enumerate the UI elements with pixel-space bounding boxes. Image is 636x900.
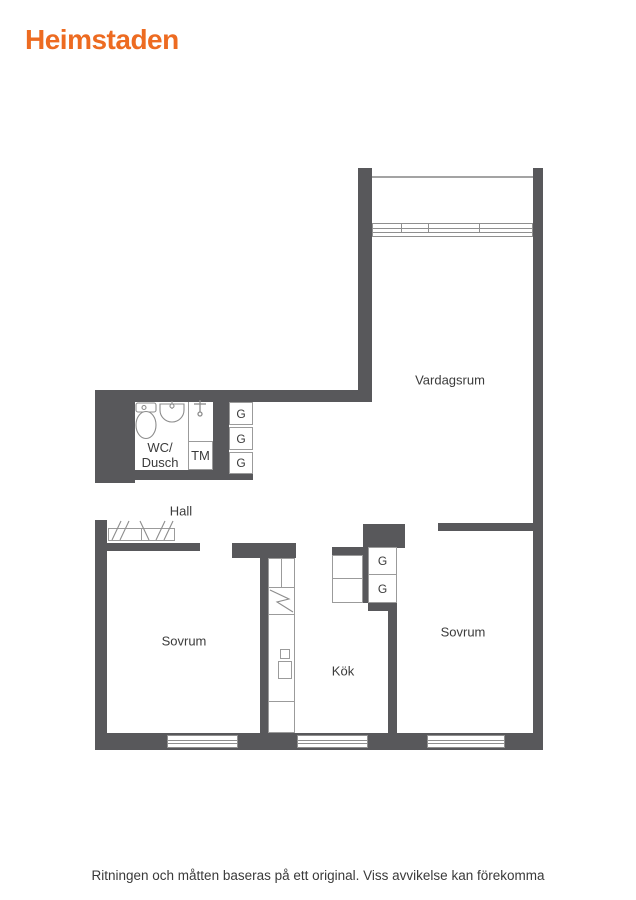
freezer-cabinet	[332, 578, 363, 603]
room-label-wc-line2: Dusch	[142, 455, 179, 470]
wall-hall-sovrum	[95, 543, 200, 551]
kitchen-counter	[268, 558, 295, 733]
wardrobe-cabinet: G	[368, 547, 397, 575]
wall-sovrum-right-top	[438, 523, 533, 531]
shower-stall-divider	[188, 402, 189, 442]
disclaimer-text: Ritningen och måtten baseras på ett orig…	[0, 868, 636, 883]
wardrobe-cabinet: G	[229, 402, 253, 425]
room-label-sovrum-left: Sovrum	[162, 634, 207, 649]
wall-fridge-top	[332, 547, 363, 555]
wall-kitchen-partition	[232, 543, 296, 558]
room-label-wc-line1: WC/	[142, 440, 179, 455]
heimstaden-logo: Heimstaden	[25, 24, 179, 56]
room-label-wc-dusch: WC/ Dusch	[142, 440, 179, 470]
wall-kok-sovrum	[388, 611, 397, 733]
wall-tm-wardrobe-divider	[213, 402, 229, 480]
window-sovrum-left	[167, 735, 238, 748]
window-kok	[297, 735, 368, 748]
wardrobe-cabinet: G	[229, 427, 253, 450]
floor-plan-page: Heimstaden G G G G G TM	[0, 0, 636, 900]
balcony-window	[372, 223, 533, 237]
washing-machine: TM	[188, 441, 213, 470]
wall-outer-left-lower	[95, 520, 107, 750]
window-sovrum-right	[427, 735, 505, 748]
wall-vardagsrum-left	[358, 168, 372, 402]
wardrobe-cabinet: G	[229, 452, 253, 474]
balcony-railing	[372, 176, 533, 178]
shower-icon	[194, 400, 206, 416]
kitchen-sink-small	[280, 649, 290, 659]
wall-wardrobe-top-block	[363, 524, 405, 548]
wall-wardrobe-bottom-step	[368, 603, 397, 611]
wardrobe-cabinet: G	[368, 574, 397, 603]
toilet-icon	[136, 403, 156, 439]
wall-top-horizontal	[95, 390, 372, 402]
kitchen-sink-large	[278, 661, 292, 679]
sink-icon	[160, 401, 184, 422]
fridge-cabinet	[332, 555, 363, 579]
wall-outer-right	[533, 168, 543, 750]
room-label-vardagsrum: Vardagsrum	[415, 373, 485, 388]
wall-wc-left-block	[95, 390, 135, 483]
room-label-kok: Kök	[332, 664, 354, 679]
room-label-sovrum-right: Sovrum	[441, 625, 486, 640]
room-label-hall: Hall	[170, 504, 192, 519]
wall-kitchen-vertical	[260, 558, 268, 733]
coat-rack	[108, 528, 175, 541]
